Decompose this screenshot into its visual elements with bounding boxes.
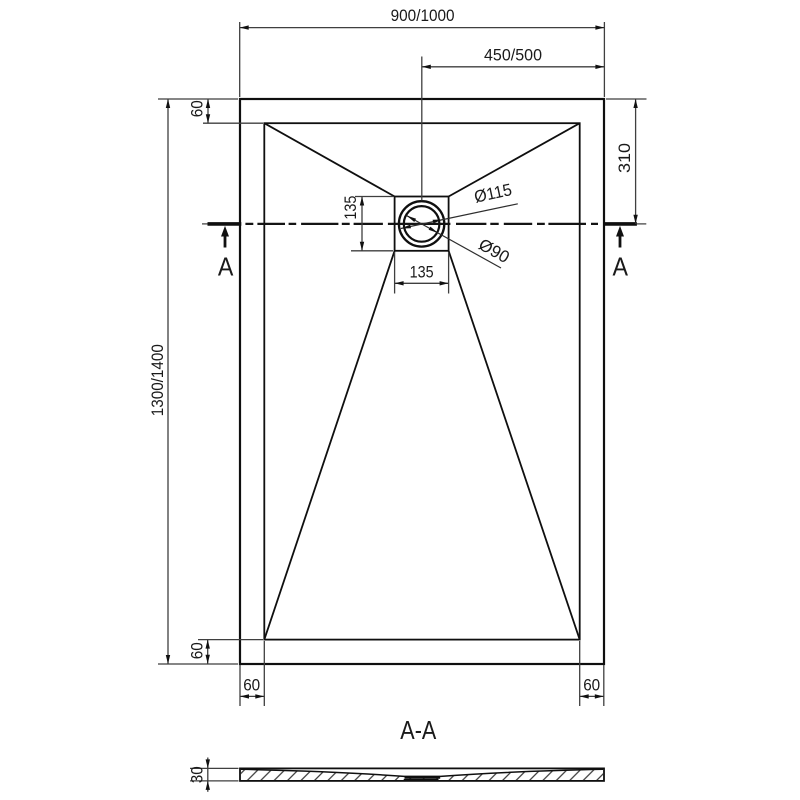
svg-text:1300/1400: 1300/1400 <box>149 344 167 416</box>
svg-text:450/500: 450/500 <box>484 46 542 64</box>
svg-text:135: 135 <box>410 263 434 281</box>
svg-text:310: 310 <box>616 143 634 173</box>
svg-text:A: A <box>613 252 629 282</box>
svg-text:60: 60 <box>243 677 260 695</box>
svg-text:60: 60 <box>189 100 207 117</box>
svg-text:135: 135 <box>342 196 360 220</box>
svg-text:60: 60 <box>583 677 600 695</box>
svg-text:900/1000: 900/1000 <box>391 7 455 25</box>
svg-text:A: A <box>218 252 234 282</box>
svg-text:30: 30 <box>188 766 206 783</box>
svg-text:60: 60 <box>188 642 206 659</box>
svg-text:A-A: A-A <box>400 717 436 745</box>
